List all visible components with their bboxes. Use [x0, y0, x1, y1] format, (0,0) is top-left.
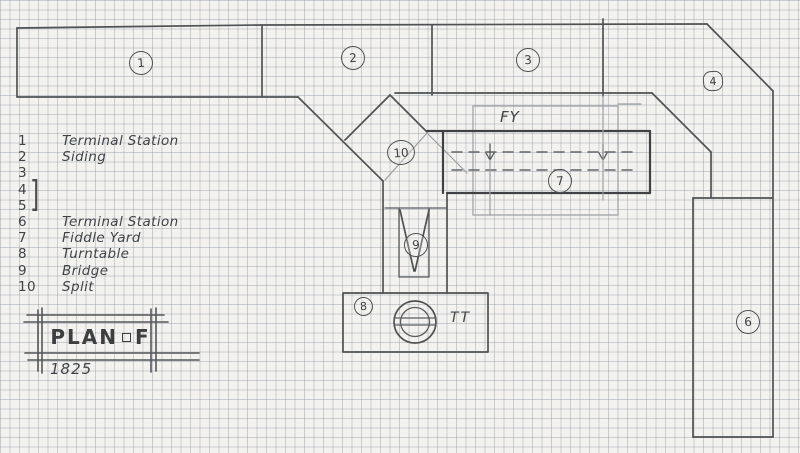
square-separator-icon [122, 333, 131, 342]
legend-label: Split [62, 279, 94, 295]
legend-label: Turntable [62, 246, 129, 262]
legend-number: 3 [14, 165, 44, 181]
section-marker-9: 9 [403, 232, 429, 258]
section-marker-1: 1 [128, 50, 154, 76]
section-marker-6: 6 [735, 309, 761, 335]
track-plan-sheet: 1 2 3 4 6 7 8 9 10 1 Terminal Station 2 … [0, 0, 800, 453]
turntable-label: TT [450, 310, 471, 326]
section-marker-10: 10 [386, 139, 416, 166]
legend-row: 1 Terminal Station [14, 133, 179, 149]
legend-label: Bridge [62, 263, 108, 279]
legend-row: 8 Turntable [14, 246, 179, 262]
plan-title-right: F [135, 325, 151, 349]
section-marker-8: 8 [353, 296, 373, 316]
legend-row: 7 Fiddle Yard [14, 230, 179, 246]
section-marker-3: 3 [515, 47, 541, 73]
legend-group-bracket: ] [30, 176, 39, 212]
legend-number: 9 [14, 263, 44, 279]
fiddle-yard-lines [427, 96, 650, 215]
legend-row: 10 Split [14, 279, 179, 295]
legend-row: 6 Terminal Station [14, 214, 179, 230]
legend-row: 2 Siding [14, 149, 179, 165]
fiddle-yard-label: FY [500, 108, 520, 126]
legend-label: Terminal Station [62, 214, 179, 230]
legend-label: Fiddle Yard [62, 230, 141, 246]
legend-label: Terminal Station [62, 133, 179, 149]
legend-row: 9 Bridge [14, 263, 179, 279]
legend-number: 2 [14, 149, 44, 165]
legend-number: 7 [14, 230, 44, 246]
section-marker-7: 7 [547, 168, 573, 194]
legend-number: 5 [14, 198, 44, 214]
legend-number: 8 [14, 246, 44, 262]
legend-label: Siding [62, 149, 106, 165]
legend-number: 6 [14, 214, 44, 230]
plan-year: 1825 [50, 360, 92, 378]
legend-number: 10 [14, 279, 44, 295]
section-marker-2: 2 [340, 45, 366, 71]
plan-title-left: PLAN [50, 325, 118, 349]
plan-title: PLAN F [48, 325, 153, 349]
section-marker-4: 4 [702, 70, 723, 91]
legend-number: 1 [14, 133, 44, 149]
legend-number: 4 [14, 182, 44, 198]
split-section-lines [298, 95, 467, 181]
